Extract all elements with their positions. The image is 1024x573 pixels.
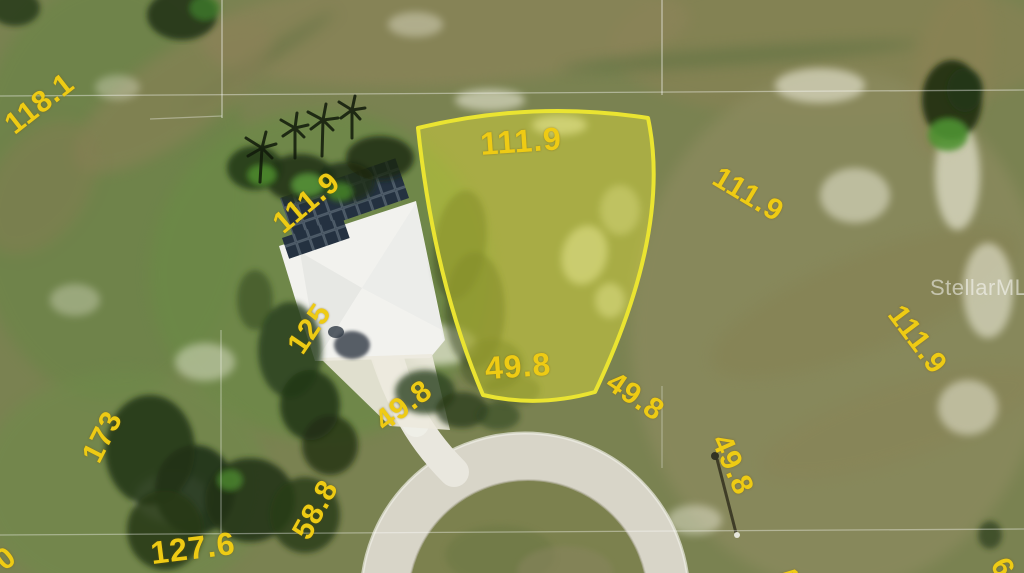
cul-de-sac-road bbox=[361, 433, 689, 573]
tree-cluster-east bbox=[922, 60, 1002, 549]
dimension-label-111-9-top: 111.9 bbox=[479, 122, 563, 160]
aerial-photo: 118.1 111.9 111.9 111.9 111.9 125 173 49… bbox=[0, 0, 1024, 573]
map-features bbox=[0, 0, 1024, 573]
dimension-label-49-8-bottom: 49.8 bbox=[484, 348, 552, 385]
mls-watermark: StellarMLS bbox=[930, 277, 1024, 299]
tree-cluster-north bbox=[0, 0, 220, 40]
